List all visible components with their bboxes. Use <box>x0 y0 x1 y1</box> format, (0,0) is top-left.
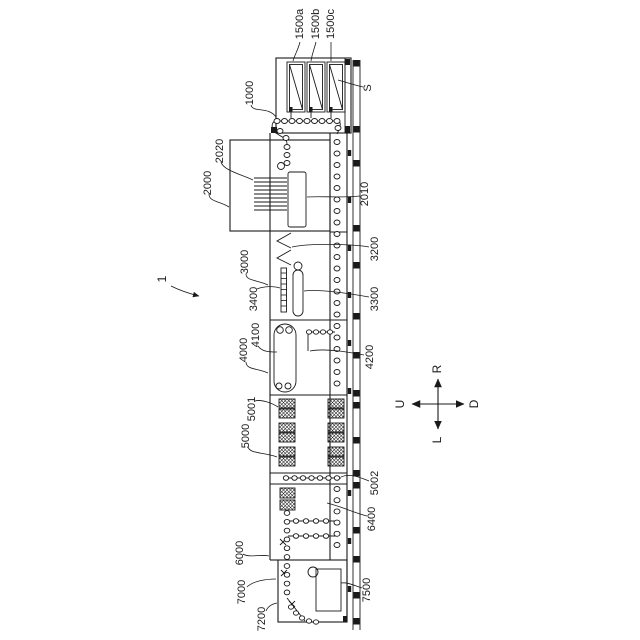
label-substrate-s: S <box>362 84 374 91</box>
label-2000: 2000 <box>202 171 214 195</box>
compass-label-left: U <box>393 400 407 409</box>
roller <box>334 163 340 168</box>
roller <box>284 145 290 150</box>
roller <box>334 312 340 317</box>
roller <box>334 543 340 548</box>
figure-number-arrow <box>171 286 199 296</box>
roller <box>334 220 340 225</box>
wall-dash <box>348 245 351 251</box>
roller <box>304 119 310 124</box>
winder-circle <box>308 567 318 577</box>
roller <box>334 531 340 536</box>
process-block <box>328 423 344 432</box>
roller <box>284 153 290 158</box>
loop-conveyor-4100 <box>274 324 296 392</box>
label-4100: 4100 <box>250 323 262 347</box>
roller <box>334 255 340 260</box>
label-7500: 7500 <box>361 578 373 602</box>
label-2020: 2020 <box>214 139 226 163</box>
compass-label-right: D <box>467 399 481 408</box>
rail-mark <box>354 262 360 269</box>
roller <box>284 546 290 551</box>
roller <box>309 476 314 481</box>
process-block <box>328 457 344 466</box>
roller <box>312 119 318 124</box>
patent-figure: 1500a 1500b 1500c 1000 S 2020 2000 2010 … <box>0 0 640 640</box>
roller <box>283 136 289 141</box>
tool-head-3300 <box>294 262 302 270</box>
collector-box-7500 <box>316 569 341 611</box>
label-1000: 1000 <box>244 81 256 105</box>
rail-mark <box>354 482 360 489</box>
roller <box>292 476 297 481</box>
roller <box>334 509 340 514</box>
wall-dash <box>348 150 351 156</box>
roller <box>334 140 340 145</box>
rail-mark <box>354 618 360 625</box>
label-1500c: 1500c <box>325 9 337 39</box>
label-3000: 3000 <box>239 250 251 274</box>
roller <box>334 335 340 340</box>
process-block <box>280 500 295 510</box>
rail-mark <box>354 437 360 444</box>
roller <box>313 534 318 539</box>
roller <box>306 619 311 623</box>
roller <box>283 476 288 481</box>
roller <box>274 119 280 124</box>
roller <box>334 381 340 386</box>
label-5000: 5000 <box>240 424 252 448</box>
roller <box>334 232 340 237</box>
label-1500b: 1500b <box>310 9 322 40</box>
wall-dash <box>348 292 351 298</box>
roller <box>284 564 290 569</box>
roller <box>320 330 325 334</box>
process-block <box>279 457 295 466</box>
roller <box>284 581 290 586</box>
roller <box>335 126 341 131</box>
mount-mark <box>271 127 277 133</box>
roller <box>327 330 332 334</box>
rail-mark <box>354 402 360 409</box>
label-2010: 2010 <box>359 182 371 206</box>
roller <box>334 186 340 191</box>
gripper-chevron <box>277 233 291 248</box>
transfer-robot-2010 <box>288 172 306 227</box>
rail-mark <box>354 225 360 232</box>
cassette-1500c <box>327 62 345 112</box>
rail-mark <box>354 60 360 67</box>
roller <box>327 119 333 124</box>
roller <box>284 519 290 524</box>
rail-mark <box>354 592 360 599</box>
process-block <box>328 409 344 418</box>
rail-mark <box>354 126 360 133</box>
roller <box>288 605 293 609</box>
wall-dash <box>348 340 351 346</box>
roller <box>334 301 340 306</box>
roller <box>326 476 331 481</box>
roller <box>334 209 340 214</box>
roller <box>306 330 311 334</box>
wall-dash <box>348 197 351 203</box>
roller <box>334 370 340 375</box>
wall-dash <box>348 538 351 544</box>
process-block <box>279 433 295 442</box>
roller <box>334 498 340 503</box>
wall-dash <box>348 490 351 496</box>
roller <box>334 358 340 363</box>
rack-3400 <box>281 268 287 312</box>
label-3400: 3400 <box>248 287 260 311</box>
section-4000-internals <box>274 324 335 392</box>
roller <box>284 511 290 516</box>
rail-mark <box>354 313 360 320</box>
roller <box>303 519 308 524</box>
roller <box>293 519 298 524</box>
roller <box>313 330 318 334</box>
roller <box>334 174 340 179</box>
process-block <box>279 423 295 432</box>
roller <box>284 528 290 533</box>
roller <box>282 119 288 124</box>
label-6000: 6000 <box>234 541 246 565</box>
roller <box>334 487 340 492</box>
roller <box>284 590 290 595</box>
process-block <box>279 447 295 456</box>
roller <box>334 151 340 156</box>
label-7000: 7000 <box>236 580 248 604</box>
roller <box>334 266 340 271</box>
rail-mark <box>354 527 360 534</box>
wall-dash <box>348 586 351 592</box>
compass-label-down: L <box>430 436 444 443</box>
figure-number: 1 <box>155 275 169 282</box>
stocker-internals <box>288 172 306 227</box>
roller <box>297 119 303 124</box>
process-block <box>280 488 295 498</box>
rail-mark <box>354 160 360 167</box>
label-3300: 3300 <box>369 287 381 311</box>
mount-mark <box>345 59 350 65</box>
roller <box>334 197 340 202</box>
roller <box>278 163 285 170</box>
roller <box>334 324 340 329</box>
figure-canvas: 1500a 1500b 1500c 1000 S 2020 2000 2010 … <box>0 0 640 640</box>
roller <box>284 537 290 542</box>
roller <box>300 476 305 481</box>
process-block <box>328 433 344 442</box>
process-block <box>279 399 295 408</box>
process-block <box>279 409 295 418</box>
roller <box>299 616 304 620</box>
label-1500a: 1500a <box>294 8 306 39</box>
roller <box>323 519 328 524</box>
process-block <box>328 447 344 456</box>
roller <box>313 620 318 624</box>
label-6400: 6400 <box>366 507 378 531</box>
label-3200: 3200 <box>369 237 381 261</box>
roller <box>334 520 340 525</box>
roller <box>317 476 322 481</box>
rail-mark <box>354 556 360 563</box>
compass-label-up: R <box>430 364 444 373</box>
roller <box>289 119 295 124</box>
process-block <box>328 399 344 408</box>
direction-compass: R L U D <box>393 364 481 443</box>
roller <box>334 119 340 124</box>
mount-mark <box>343 616 347 622</box>
gripper-chevron <box>277 250 291 265</box>
rail-mark <box>354 390 360 397</box>
label-5002: 5002 <box>369 471 381 495</box>
label-5001: 5001 <box>246 397 258 421</box>
roller <box>334 278 340 283</box>
roller <box>323 534 328 539</box>
roller <box>277 129 283 134</box>
roller <box>284 572 290 577</box>
label-4000: 4000 <box>238 338 250 362</box>
roller <box>284 555 290 560</box>
roller <box>334 476 339 481</box>
label-7200: 7200 <box>256 607 268 631</box>
roller <box>334 289 340 294</box>
tool-body-3300 <box>293 270 303 316</box>
roller <box>334 243 340 248</box>
stocker-box <box>230 140 330 231</box>
roller <box>303 534 308 539</box>
roller <box>319 119 325 124</box>
wall-dash <box>348 388 351 394</box>
roller <box>284 161 290 166</box>
roller <box>313 519 318 524</box>
roller <box>293 534 298 539</box>
mount-mark <box>345 126 350 133</box>
cassette-1500b <box>307 62 325 112</box>
cassette-1500a <box>287 62 305 112</box>
roller <box>293 611 298 615</box>
rail-mark <box>354 470 360 477</box>
label-4200: 4200 <box>364 345 376 369</box>
